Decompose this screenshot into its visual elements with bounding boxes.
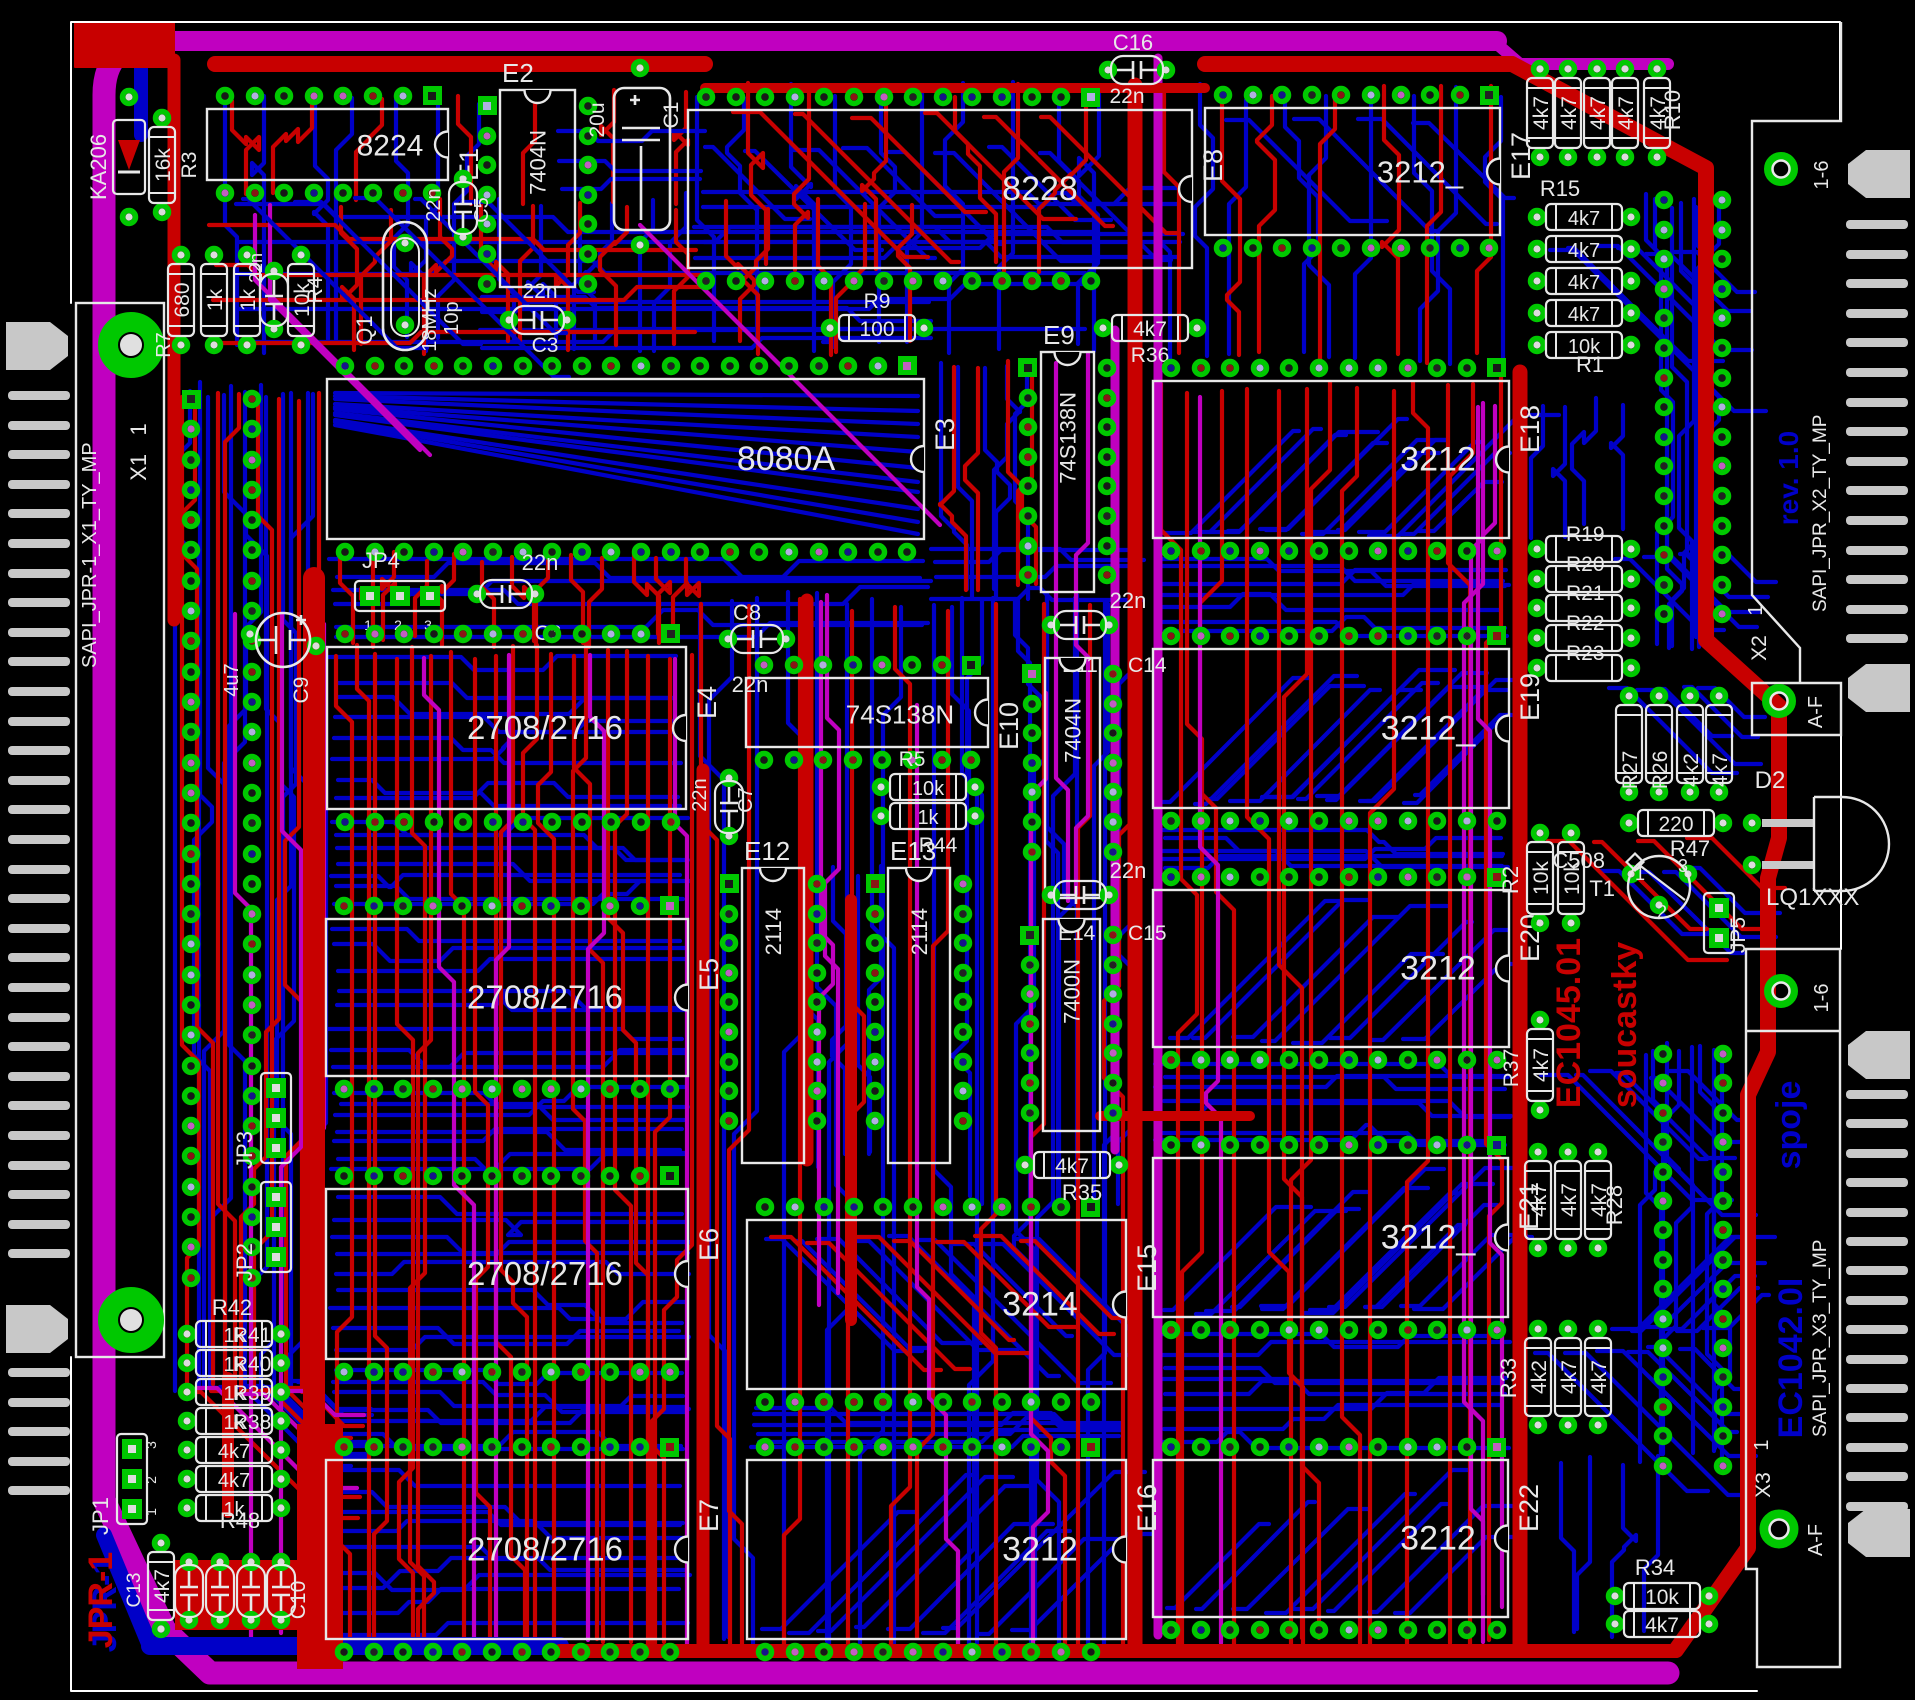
svg-text:JP3: JP3 [232,1131,257,1169]
svg-text:4k7: 4k7 [1587,96,1610,130]
svg-text:4k7: 4k7 [1055,1155,1089,1178]
svg-text:JP1: JP1 [88,1497,113,1535]
svg-text:C1: C1 [660,102,683,129]
svg-text:3214: 3214 [1002,1286,1078,1324]
svg-text:4k7: 4k7 [1568,208,1600,230]
svg-text:R3: R3 [178,152,201,179]
svg-text:7404N: 7404N [526,130,551,195]
svg-text:4u7: 4u7 [221,663,243,696]
svg-text:R28: R28 [1602,1185,1627,1225]
svg-text:22n: 22n [246,253,266,283]
svg-text:1: 1 [1745,604,1767,615]
svg-text:E2: E2 [502,58,534,88]
svg-text:D2: D2 [1755,767,1786,794]
svg-text:X3: X3 [1752,1472,1775,1498]
svg-text:74S138N: 74S138N [846,700,954,730]
svg-text:E9: E9 [1043,320,1075,350]
svg-text:2708/2716: 2708/2716 [467,1255,623,1292]
svg-text:JP5: JP5 [1727,917,1750,953]
svg-text:R37: R37 [1500,1049,1523,1088]
svg-text:SAPI_JPR-1_X1_TY_MP: SAPI_JPR-1_X1_TY_MP [79,442,101,668]
svg-text:3212_: 3212_ [1381,1219,1477,1257]
svg-text:22n: 22n [1110,858,1147,883]
svg-text:22n: 22n [1109,85,1144,108]
svg-text:T1: T1 [1589,876,1615,901]
svg-text:R33: R33 [1496,1358,1521,1398]
svg-text:22n: 22n [423,188,445,221]
svg-text:3: 3 [143,1441,159,1449]
svg-text:4k7: 4k7 [1558,96,1581,130]
svg-text:3212: 3212 [1400,950,1476,988]
svg-text:4k7: 4k7 [1709,753,1732,787]
svg-text:4k7: 4k7 [1558,1183,1581,1217]
svg-text:8228: 8228 [1002,170,1078,208]
svg-text:C10: C10 [287,1581,310,1620]
svg-text:C16: C16 [1113,30,1153,55]
svg-text:R42: R42 [212,1295,252,1320]
svg-text:4k7: 4k7 [1528,1183,1551,1217]
svg-text:4k2: 4k2 [1680,753,1703,787]
svg-text:A-F: A-F [1805,1524,1827,1556]
svg-text:soucastky: soucastky [1606,942,1644,1108]
svg-text:10p: 10p [441,301,463,334]
svg-text:R23: R23 [1566,642,1605,665]
svg-text:KA206: KA206 [86,134,111,200]
svg-text:4k7: 4k7 [1568,240,1600,262]
svg-text:100: 100 [859,318,894,341]
svg-text:16k: 16k [152,148,175,182]
svg-text:R48: R48 [220,1508,260,1533]
svg-text:R4: R4 [304,276,327,303]
svg-text:SAPI_JPR_X2_TY_MP: SAPI_JPR_X2_TY_MP [1810,415,1831,612]
svg-text:3212: 3212 [1002,1531,1078,1569]
svg-text:1k: 1k [917,807,939,829]
svg-text:C3: C3 [532,334,559,357]
svg-text:R10: R10 [1660,90,1685,130]
svg-text:22n: 22n [689,778,711,811]
svg-text:2114: 2114 [761,908,786,955]
svg-text:R40: R40 [233,1353,272,1376]
svg-text:4k2: 4k2 [1528,1360,1551,1394]
svg-text:R41: R41 [233,1324,272,1347]
svg-text:3212: 3212 [1400,441,1476,479]
svg-text:C15: C15 [1128,922,1167,945]
svg-text:1-6: 1-6 [1811,984,1833,1013]
svg-text:R5: R5 [899,748,926,771]
svg-text:R9: R9 [864,290,891,313]
svg-text:E6: E6 [694,1228,724,1261]
svg-text:1: 1 [1635,864,1645,884]
svg-text:220: 220 [1658,813,1693,836]
svg-text:4k7: 4k7 [151,1569,174,1603]
svg-text:E13: E13 [890,836,936,866]
svg-text:4k7: 4k7 [1558,1360,1581,1394]
svg-text:3212_: 3212_ [1377,155,1464,190]
svg-text:E16: E16 [1132,1484,1162,1532]
svg-text:C8: C8 [733,600,761,625]
svg-text:C14: C14 [1128,654,1167,677]
svg-text:E10: E10 [994,702,1024,750]
svg-text:LQ1XXX: LQ1XXX [1766,884,1859,911]
svg-text:EC1045.01: EC1045.01 [1550,938,1588,1108]
svg-text:8224: 8224 [357,130,424,163]
svg-text:3212: 3212 [1400,1520,1476,1558]
svg-text:4k7: 4k7 [218,1441,250,1463]
svg-text:3: 3 [1678,856,1688,876]
svg-text:C13: C13 [124,1573,145,1608]
svg-text:74S138N: 74S138N [1056,392,1081,484]
svg-text:R20: R20 [1566,553,1605,576]
svg-text:JP2: JP2 [232,1243,257,1281]
svg-text:18MHz: 18MHz [419,288,441,351]
svg-text:2708/2716: 2708/2716 [467,1531,623,1568]
svg-text:R27: R27 [1619,751,1642,790]
svg-text:1: 1 [143,1508,159,1516]
svg-text:R15: R15 [1540,176,1580,201]
svg-text:E4: E4 [692,686,722,719]
svg-text:R2: R2 [1498,866,1523,894]
svg-text:X2: X2 [1748,635,1771,661]
svg-text:4k7: 4k7 [1133,318,1167,341]
svg-text:7404N: 7404N [1061,698,1086,763]
svg-text:R7: R7 [153,332,175,358]
svg-text:E15: E15 [1132,1244,1162,1292]
svg-text:1: 1 [1751,1439,1773,1450]
svg-text:2: 2 [143,1476,159,1484]
svg-text:R34: R34 [1635,1555,1675,1580]
svg-text:R38: R38 [233,1411,272,1434]
svg-text:R19: R19 [1566,523,1605,546]
svg-text:E3: E3 [930,418,960,451]
svg-text:1k: 1k [204,288,227,311]
svg-text:rev. 1.0: rev. 1.0 [1773,431,1804,525]
svg-text:2114: 2114 [907,908,932,955]
svg-text:JPR-1: JPR-1 [82,1552,120,1648]
svg-text:4k7: 4k7 [1568,304,1600,326]
svg-text:8080A: 8080A [737,440,836,478]
svg-text:E7: E7 [694,1499,724,1532]
svg-text:4k7: 4k7 [1568,272,1600,294]
svg-text:C508: C508 [1552,848,1605,873]
svg-text:680: 680 [171,282,194,317]
svg-text:10k: 10k [1645,1586,1679,1609]
svg-text:4k7: 4k7 [1530,96,1553,130]
svg-text:4k7: 4k7 [1645,1614,1679,1637]
svg-text:E19: E19 [1515,673,1545,721]
svg-text:R39: R39 [233,1382,272,1405]
svg-text:4k7: 4k7 [1588,1360,1611,1394]
svg-text:R47: R47 [1670,836,1710,861]
svg-text:20u: 20u [586,102,609,137]
svg-text:22n: 22n [522,550,559,575]
svg-text:SAPI_JPR_X3_TY_MP: SAPI_JPR_X3_TY_MP [1810,1240,1831,1437]
svg-text:spoje: spoje [1770,1081,1808,1170]
svg-text:1-6: 1-6 [1811,161,1833,190]
svg-text:X1 1: X1 1 [126,423,151,480]
svg-text:2708/2716: 2708/2716 [467,709,623,746]
svg-text:C9: C9 [290,677,313,704]
svg-text:E8: E8 [1198,149,1228,182]
svg-text:R26: R26 [1649,751,1672,790]
svg-text:2708/2716: 2708/2716 [467,979,623,1016]
svg-text:R22: R22 [1566,612,1605,635]
svg-text:E12: E12 [744,836,790,866]
svg-text:10k: 10k [1530,861,1553,895]
svg-text:7400N: 7400N [1060,959,1085,1024]
svg-text:4k7: 4k7 [218,1470,250,1492]
svg-text:10k: 10k [912,778,945,800]
svg-text:2: 2 [1657,902,1667,922]
svg-text:R35: R35 [1062,1180,1102,1205]
svg-text:Q1: Q1 [352,315,377,344]
svg-text:JP4: JP4 [362,548,400,573]
svg-text:22n: 22n [732,672,769,697]
svg-text:R1: R1 [1576,352,1604,377]
svg-text:C5: C5 [471,197,493,223]
svg-text:1k: 1k [237,288,260,311]
svg-text:EC1042.0I: EC1042.0I [1772,1278,1810,1439]
svg-text:C7: C7 [735,787,757,813]
svg-text:22n: 22n [522,280,557,303]
svg-text:A-F: A-F [1805,696,1827,728]
svg-text:22n: 22n [1110,588,1147,613]
svg-text:3212_: 3212_ [1381,710,1477,748]
svg-text:E18: E18 [1515,405,1545,453]
svg-text:4k7: 4k7 [1615,96,1638,130]
svg-text:E22: E22 [1514,1484,1544,1532]
svg-text:E5: E5 [694,958,724,991]
svg-text:R21: R21 [1566,582,1605,605]
